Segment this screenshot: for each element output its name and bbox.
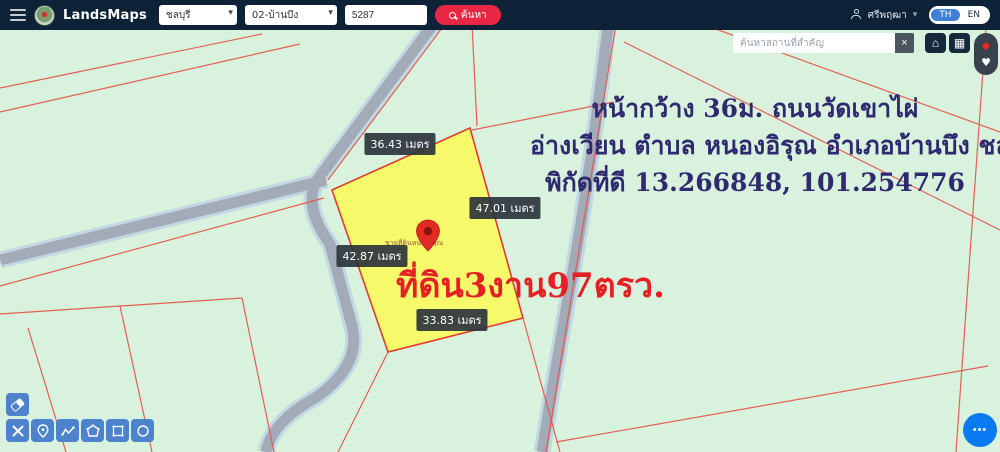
home-icon: ⌂ xyxy=(932,36,939,50)
annotation-line-frontage: หน้ากว้าง 36ม. ถนนวัดเขาไผ่ xyxy=(530,90,980,127)
map-canvas[interactable]: × ⌂ ▦ ◆ ♥ หน้ากว้าง 36ม. ถนนวัดเขาไผ่ อ่… xyxy=(0,30,1000,452)
measure-toolbar xyxy=(6,419,154,442)
measure-polygon-button[interactable] xyxy=(81,419,104,442)
draw-tools-icon xyxy=(11,424,25,438)
brand-title: LandsMaps xyxy=(63,8,147,23)
header-right: ศรีพฤฒา ▾ TH EN xyxy=(851,6,990,24)
dimension-label-top: 36.43 เมตร xyxy=(364,133,435,155)
marker-diamond-icon[interactable]: ◆ xyxy=(982,40,990,51)
poi-search-input[interactable] xyxy=(733,33,895,53)
chevron-down-icon: ▾ xyxy=(328,8,333,18)
annotation-line-coordinates: พิกัดที่ดี 13.266848, 101.254776 xyxy=(530,164,980,201)
language-toggle: TH EN xyxy=(929,6,990,24)
province-select[interactable]: ชลบุรี ▾ xyxy=(159,5,237,25)
user-menu-chevron-icon[interactable]: ▾ xyxy=(913,10,918,20)
search-button[interactable]: ค้นหา xyxy=(435,5,501,25)
grid-icon: ▦ xyxy=(954,36,965,50)
ellipsis-icon: ••• xyxy=(973,424,988,436)
home-button[interactable]: ⌂ xyxy=(925,33,946,53)
favorite-pill: ◆ ♥ xyxy=(974,33,998,75)
parcel-area-text: ที่ดิน3งาน97ตรว. xyxy=(396,258,665,312)
lang-en-button[interactable]: EN xyxy=(960,9,988,21)
district-select-value: 02-บ้านบึง xyxy=(252,8,298,23)
measure-distance-button[interactable] xyxy=(56,419,79,442)
landsmaps-app: LandsMaps ชลบุรี ▾ 02-บ้านบึง ▾ ค้นหา ศร… xyxy=(0,0,1000,452)
dimension-label-bottom: 33.83 เมตร xyxy=(416,309,487,331)
lang-th-button[interactable]: TH xyxy=(931,9,959,21)
draw-tools-button[interactable] xyxy=(6,419,29,442)
dimension-label-left: 42.87 เมตร xyxy=(336,245,407,267)
username: ศรีพฤฒา xyxy=(868,8,907,23)
circle-icon xyxy=(136,424,150,438)
heart-icon[interactable]: ♥ xyxy=(981,57,991,68)
department-of-lands-logo xyxy=(34,5,55,26)
measure-circle-button[interactable] xyxy=(131,419,154,442)
eraser-icon xyxy=(10,397,25,411)
clear-search-button[interactable]: × xyxy=(895,33,914,53)
search-button-label: ค้นหา xyxy=(461,8,487,23)
layers-grid-button[interactable]: ▦ xyxy=(949,33,970,53)
annotation-line-location: อ่างเวียน ตำบล หนองอิรุณ อำเภอบ้านบึง ชล… xyxy=(530,127,980,164)
rectangle-icon xyxy=(111,424,125,438)
eraser-tool-button[interactable] xyxy=(6,393,29,416)
user-icon xyxy=(851,9,862,21)
parcel-number-input[interactable] xyxy=(345,5,427,25)
pin-icon xyxy=(36,424,50,438)
poi-search-bar: × xyxy=(733,33,914,53)
measure-rectangle-button[interactable] xyxy=(106,419,129,442)
district-select[interactable]: 02-บ้านบึง ▾ xyxy=(245,5,337,25)
dimension-label-right: 47.01 เมตร xyxy=(469,197,540,219)
chevron-down-icon: ▾ xyxy=(228,8,233,18)
hamburger-menu-icon[interactable] xyxy=(10,9,26,21)
top-navbar: LandsMaps ชลบุรี ▾ 02-บ้านบึง ▾ ค้นหา ศร… xyxy=(0,0,1000,30)
close-icon: × xyxy=(901,37,907,49)
province-select-value: ชลบุรี xyxy=(166,8,191,23)
more-options-fab[interactable]: ••• xyxy=(963,413,997,447)
location-pin-icon[interactable] xyxy=(415,219,441,252)
listing-annotation: หน้ากว้าง 36ม. ถนนวัดเขาไผ่ อ่างเวียน ตำ… xyxy=(530,90,980,201)
search-icon xyxy=(449,12,456,19)
measure-zigzag-icon xyxy=(61,424,75,438)
pin-tool-button[interactable] xyxy=(31,419,54,442)
polygon-icon xyxy=(86,424,100,438)
